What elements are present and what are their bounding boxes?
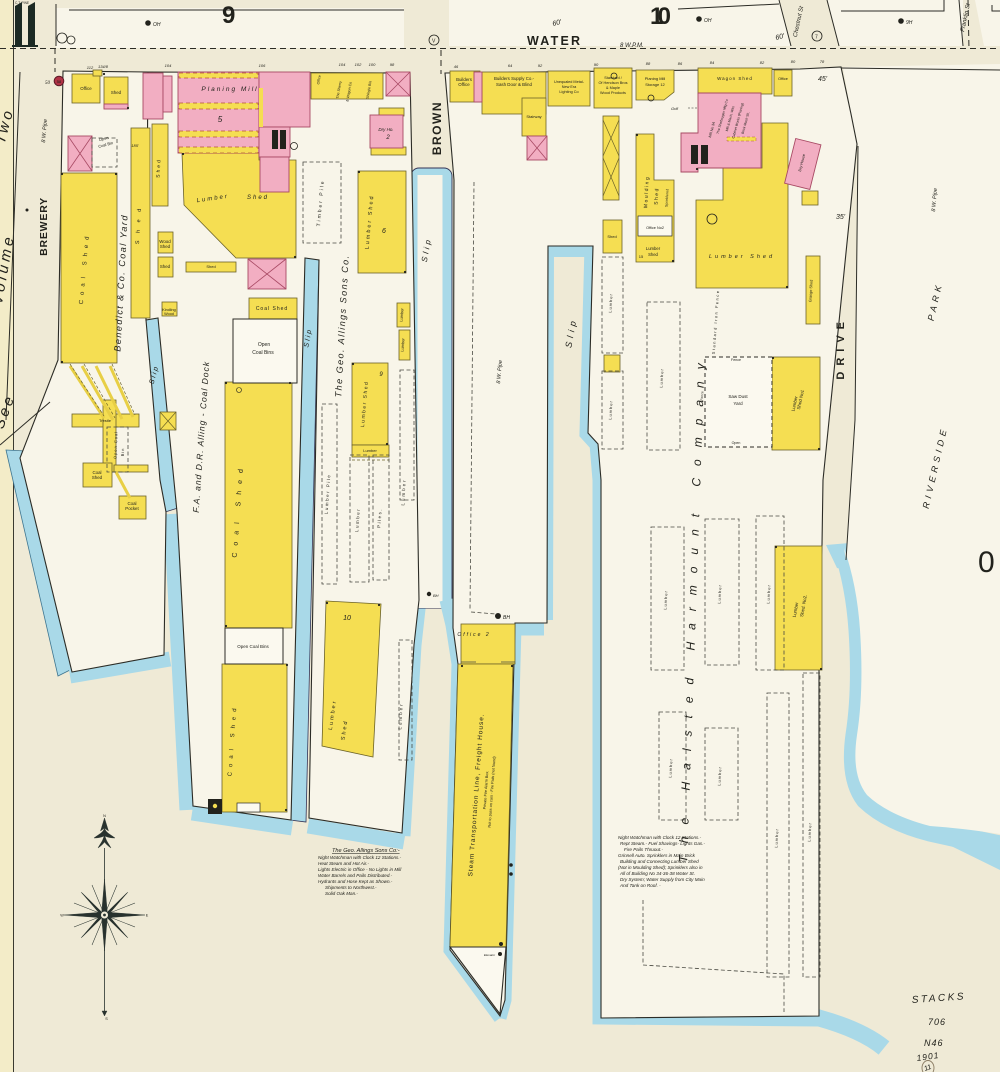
svg-text:Shed: Shed — [247, 195, 269, 201]
svg-text:Lumber: Lumber — [716, 584, 722, 604]
svg-text:Night Watchman with Clock 12 S: Night Watchman with Clock 12 Stations.- — [318, 855, 402, 860]
svg-text:Lights Electric in Office - No: Lights Electric in Office - No Lights in… — [318, 867, 402, 872]
svg-text:Open: Open — [732, 441, 741, 445]
svg-text:Office: Office — [778, 77, 788, 81]
svg-text:N46: N46 — [924, 1038, 944, 1048]
svg-text:Hydrants and Hose Kept as Show: Hydrants and Hose Kept as Shown.- — [318, 879, 393, 884]
svg-text:98: 98 — [390, 62, 395, 67]
svg-text:Heat Steam and Hot Air.-: Heat Steam and Hot Air.- — [318, 861, 369, 866]
svg-text:Pocket: Pocket — [125, 506, 139, 511]
svg-text:84: 84 — [710, 60, 715, 65]
svg-text:Lumber: Lumber — [607, 400, 613, 420]
svg-text:104: 104 — [339, 62, 346, 67]
svg-text:Stairway: Stairway — [526, 114, 541, 119]
svg-text:Lumber: Lumber — [716, 766, 722, 786]
svg-text:BH: BH — [433, 593, 439, 598]
svg-text:90: 90 — [594, 62, 599, 67]
svg-text:Fence: Fence — [700, 391, 705, 401]
svg-text:15: 15 — [639, 254, 644, 259]
svg-text:Planing Mill: Planing Mill — [645, 76, 666, 81]
svg-text:The Geo. Allings Sons Co:-: The Geo. Allings Sons Co:- — [332, 848, 400, 854]
svg-text:Lumber: Lumber — [765, 584, 771, 604]
svg-text:Rept Steam.- Fuel Shavings- Li: Rept Steam.- Fuel Shavings- Lights Gas.- — [620, 841, 705, 846]
svg-text:58: 58 — [57, 79, 62, 84]
svg-text:5: 5 — [218, 115, 223, 124]
svg-text:& Maple: & Maple — [606, 86, 620, 90]
svg-text:Open: Open — [258, 342, 270, 348]
svg-text:92: 92 — [538, 63, 543, 68]
svg-text:Grinnell Auto. Sprinklers in M: Grinnell Auto. Sprinklers in Main Brick — [618, 853, 696, 858]
svg-text:80: 80 — [791, 59, 796, 64]
svg-text:W: W — [60, 914, 64, 918]
svg-text:New Era: New Era — [562, 85, 577, 89]
svg-text:Lumber: Lumber — [363, 448, 377, 453]
svg-text:Shed: Shed — [648, 252, 658, 257]
svg-text:Wood Products: Wood Products — [600, 91, 626, 95]
svg-text:Unequaled Metal-: Unequaled Metal- — [554, 80, 585, 84]
svg-text:Wagon Shed: Wagon Shed — [717, 76, 753, 81]
svg-text:Lumber: Lumber — [773, 828, 779, 848]
svg-text:Lumber: Lumber — [806, 822, 812, 842]
svg-text:(Not in Moulding Shed); Sprink: (Not in Moulding Shed); Sprinklers also … — [618, 865, 703, 870]
svg-text:And Tank on Roof. -: And Tank on Roof. - — [619, 883, 661, 888]
svg-text:9H: 9H — [906, 20, 913, 26]
svg-text:BROWN: BROWN — [430, 101, 444, 155]
svg-text:Dry Ho.: Dry Ho. — [378, 127, 393, 132]
svg-text:Open Coal: Open Coal — [113, 431, 119, 459]
svg-text:Yard: Yard — [733, 401, 743, 406]
svg-text:185': 185' — [131, 143, 139, 148]
svg-text:Night Watchman with Clock 12 S: Night Watchman with Clock 12 Stations.- — [618, 835, 702, 840]
svg-text:WATER: WATER — [527, 34, 582, 48]
svg-text:Lumber: Lumber — [667, 758, 673, 778]
svg-text:BREWERY: BREWERY — [38, 197, 50, 256]
svg-text:Storage 12: Storage 12 — [645, 82, 665, 87]
svg-text:All of Building No 34-36-38 Wa: All of Building No 34-36-38 Water St. — [619, 871, 695, 876]
svg-text:Shed: Shed — [206, 264, 215, 269]
svg-text:Office No2: Office No2 — [646, 226, 664, 230]
svg-text:Grill: Grill — [671, 106, 678, 111]
svg-text:64: 64 — [508, 63, 513, 68]
svg-text:DRIVE: DRIVE — [835, 316, 847, 380]
svg-text:706: 706 — [928, 1017, 946, 1027]
svg-text:46: 46 — [454, 64, 459, 69]
svg-text:Lumber: Lumber — [662, 590, 668, 610]
svg-text:50: 50 — [45, 81, 51, 86]
svg-text:S: S — [105, 1017, 108, 1021]
svg-text:100: 100 — [369, 62, 376, 67]
svg-text:Saw Dust: Saw Dust — [728, 394, 748, 399]
svg-text:Office: Office — [80, 86, 92, 91]
svg-text:Shed: Shed — [160, 244, 171, 249]
svg-text:Trestle: Trestle — [99, 418, 112, 423]
svg-text:2: 2 — [385, 135, 390, 141]
svg-text:88: 88 — [646, 61, 651, 66]
svg-text:Shed: Shed — [155, 158, 162, 178]
svg-text:134/8: 134/8 — [98, 64, 109, 69]
svg-text:Wood: Wood — [164, 312, 174, 316]
svg-text:Shed: Shed — [92, 475, 103, 480]
svg-text:9: 9 — [222, 2, 235, 29]
svg-text:Lumber: Lumber — [658, 368, 664, 388]
svg-text:102: 102 — [355, 62, 362, 67]
svg-text:0: 0 — [978, 546, 995, 579]
svg-text:Office 2: Office 2 — [457, 632, 490, 638]
svg-text:7: 7 — [815, 35, 818, 41]
svg-text:Lumber: Lumber — [646, 246, 661, 251]
svg-text:Solid Oak Man.-: Solid Oak Man.- — [325, 891, 358, 896]
svg-text:Shipments to Northwest.-: Shipments to Northwest.- — [325, 885, 377, 890]
svg-text:Shed: Shed — [111, 90, 122, 95]
svg-text:6: 6 — [382, 228, 386, 235]
svg-text:Fire Pails Thruout.-: Fire Pails Thruout.- — [624, 847, 664, 852]
svg-text:Office: Office — [458, 82, 470, 87]
svg-text:112: 112 — [87, 65, 94, 70]
svg-text:Planing Mill: Planing Mill — [201, 86, 258, 93]
svg-text:106: 106 — [259, 63, 266, 68]
svg-text:Coal Bins: Coal Bins — [252, 350, 274, 356]
svg-text:8 W.P.M.: 8 W.P.M. — [620, 43, 644, 49]
svg-text:Sash Door & Blind: Sash Door & Blind — [496, 82, 532, 87]
svg-text:Lumber: Lumber — [400, 337, 406, 352]
svg-text:Open Coal Bins: Open Coal Bins — [237, 644, 269, 649]
svg-text:10: 10 — [343, 615, 351, 622]
svg-text:OH: OH — [153, 22, 161, 28]
svg-text:OH: OH — [704, 18, 712, 24]
svg-text:Bin: Bin — [120, 447, 125, 456]
svg-text:104: 104 — [165, 63, 172, 68]
svg-text:Lumber: Lumber — [607, 293, 613, 313]
svg-text:N: N — [103, 814, 106, 818]
svg-text:Water Barrels and Pails Distri: Water Barrels and Pails Distributed.- — [318, 873, 393, 878]
svg-text:Lighting Co: Lighting Co — [559, 90, 578, 94]
svg-text:Fence: Fence — [731, 358, 741, 362]
svg-text:82: 82 — [760, 60, 765, 65]
svg-text:78: 78 — [820, 59, 825, 64]
svg-text:Shed: Shed — [654, 187, 661, 205]
svg-text:Dry System; Water Supply from: Dry System; Water Supply from City Main — [620, 877, 705, 882]
svg-text:Building and Connecting Lumber: Building and Connecting Lumber Shed — [620, 859, 699, 864]
svg-text:BH: BH — [503, 615, 510, 621]
svg-text:Standard /: Standard / — [604, 76, 622, 80]
svg-text:35': 35' — [836, 214, 846, 221]
svg-text:Lumber Shed: Lumber Shed — [709, 254, 775, 260]
svg-text:Shed: Shed — [160, 264, 171, 269]
svg-text:Builders Supply Co.-: Builders Supply Co.- — [494, 76, 535, 81]
svg-text:Shed: Shed — [607, 234, 616, 239]
svg-text:45': 45' — [818, 76, 828, 83]
svg-text:Coal Shed: Coal Shed — [256, 306, 288, 312]
svg-text:Elevator: Elevator — [484, 953, 496, 957]
svg-text:E: E — [146, 914, 149, 918]
svg-text:86: 86 — [678, 61, 683, 66]
svg-text:10: 10 — [650, 3, 671, 30]
svg-text:Of Hendson Bros: Of Hendson Bros — [598, 81, 627, 85]
svg-text:Lumber: Lumber — [399, 307, 405, 322]
